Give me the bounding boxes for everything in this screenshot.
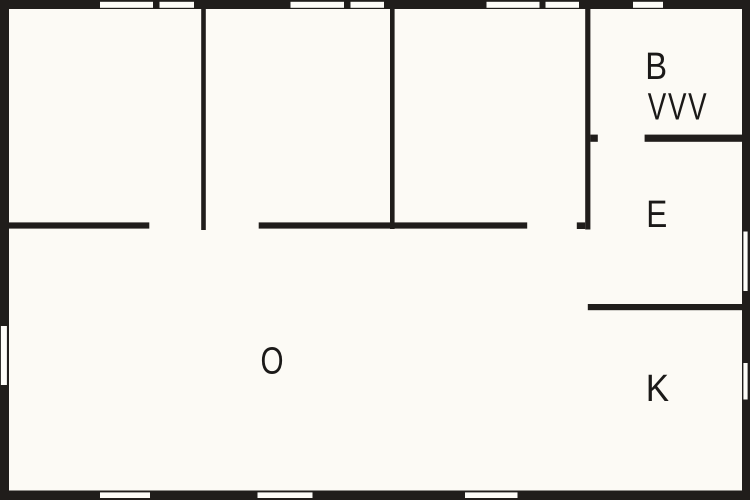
svg-text:O: O <box>261 340 284 382</box>
svg-text:E: E <box>646 193 667 235</box>
svg-text:K: K <box>646 367 669 410</box>
svg-text:B: B <box>645 45 667 88</box>
svg-text:VVV: VVV <box>648 86 708 128</box>
